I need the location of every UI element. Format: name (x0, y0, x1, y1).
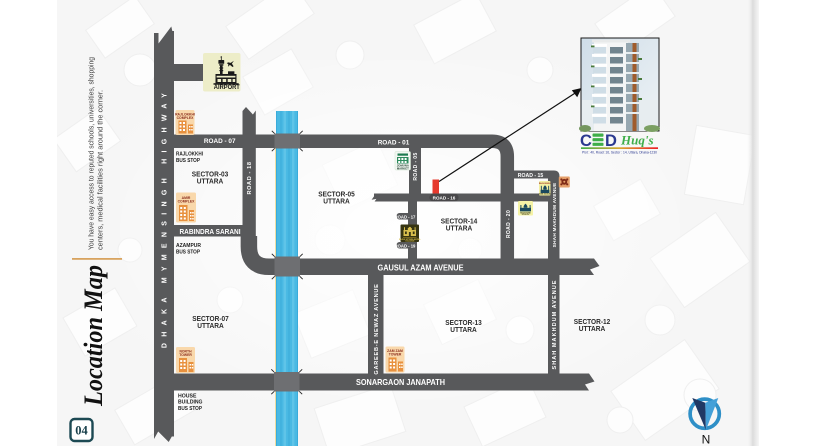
svg-text:GAUSUL AZAM AVENUE: GAUSUL AZAM AVENUE (378, 262, 464, 272)
svg-text:COLLEGE: COLLEGE (405, 241, 415, 243)
svg-text:TOWER: TOWER (179, 353, 192, 357)
svg-text:BUS STOP: BUS STOP (178, 406, 202, 412)
svg-text:ROAD - 17: ROAD - 17 (395, 214, 416, 219)
svg-text:ROAD - 20: ROAD - 20 (506, 210, 512, 238)
svg-text:N: N (702, 432, 711, 446)
svg-text:UTTARA: UTTARA (323, 197, 350, 206)
svg-text:UTTARA: UTTARA (197, 321, 224, 330)
svg-text:ROAD - 05: ROAD - 05 (413, 152, 419, 180)
svg-text:COMPLEX: COMPLEX (177, 116, 195, 120)
svg-text:UTTARA: UTTARA (446, 224, 473, 233)
svg-text:ROAD - 07: ROAD - 07 (204, 138, 236, 145)
svg-text:RAJLOKKHI: RAJLOKKHI (539, 182, 551, 185)
svg-text:TOWER: TOWER (389, 353, 402, 357)
svg-text:ROAD - 19: ROAD - 19 (395, 243, 416, 248)
svg-text:SCHOOL: SCHOOL (522, 214, 531, 216)
svg-text:SHAH MAKHDUM AVENUE: SHAH MAKHDUM AVENUE (552, 280, 558, 370)
svg-text:Location Map: Location Map (79, 265, 108, 407)
svg-text:04: 04 (75, 424, 88, 438)
svg-text:SHAH MAKHDUM AVENUE: SHAH MAKHDUM AVENUE (552, 182, 558, 247)
svg-text:RAJLOKKHI: RAJLOKKHI (176, 152, 203, 158)
svg-text:DHAKA MYMENSINGH HIGHWAY: DHAKA MYMENSINGH HIGHWAY (161, 87, 168, 348)
svg-text:ROAD - 15: ROAD - 15 (518, 173, 544, 179)
svg-text:ROAD - 18: ROAD - 18 (247, 161, 253, 194)
svg-text:JAME MASJID: JAME MASJID (539, 193, 552, 196)
svg-text:RABINDRA SARANI: RABINDRA SARANI (180, 227, 241, 236)
svg-text:SONARGAON JANAPATH: SONARGAON JANAPATH (356, 377, 445, 387)
svg-text:AZAMPUR: AZAMPUR (176, 243, 202, 249)
svg-text:AIRPORT: AIRPORT (214, 84, 240, 91)
svg-text:ROAD - 01: ROAD - 01 (378, 139, 410, 146)
svg-text:UTTARA: UTTARA (197, 177, 224, 186)
svg-text:ROAD - 16: ROAD - 16 (433, 196, 456, 201)
svg-text:You have easy access to repute: You have easy access to reputed schools,… (89, 57, 96, 250)
svg-text:BUILDING: BUILDING (178, 400, 203, 406)
svg-text:BUS STOP: BUS STOP (176, 249, 200, 255)
svg-text:centers, medical facilities ri: centers, medical facilities right around… (98, 90, 105, 250)
svg-text:Plot : 40, Road: 16, Sector :: Plot : 40, Road: 16, Sector : 14, Uttara… (582, 150, 658, 155)
svg-text:UTTARA: UTTARA (450, 325, 477, 334)
svg-text:GAREEB-E NEWAZ AVENUE: GAREEB-E NEWAZ AVENUE (374, 283, 380, 374)
svg-text:BUS STOP: BUS STOP (176, 158, 200, 164)
svg-text:UTTARA: UTTARA (579, 324, 606, 333)
svg-text:MARKET: MARKET (397, 166, 409, 170)
svg-text:COMPLEX: COMPLEX (178, 200, 196, 204)
svg-text:HOUSE: HOUSE (178, 393, 197, 399)
svg-text:Huq's: Huq's (620, 133, 654, 148)
